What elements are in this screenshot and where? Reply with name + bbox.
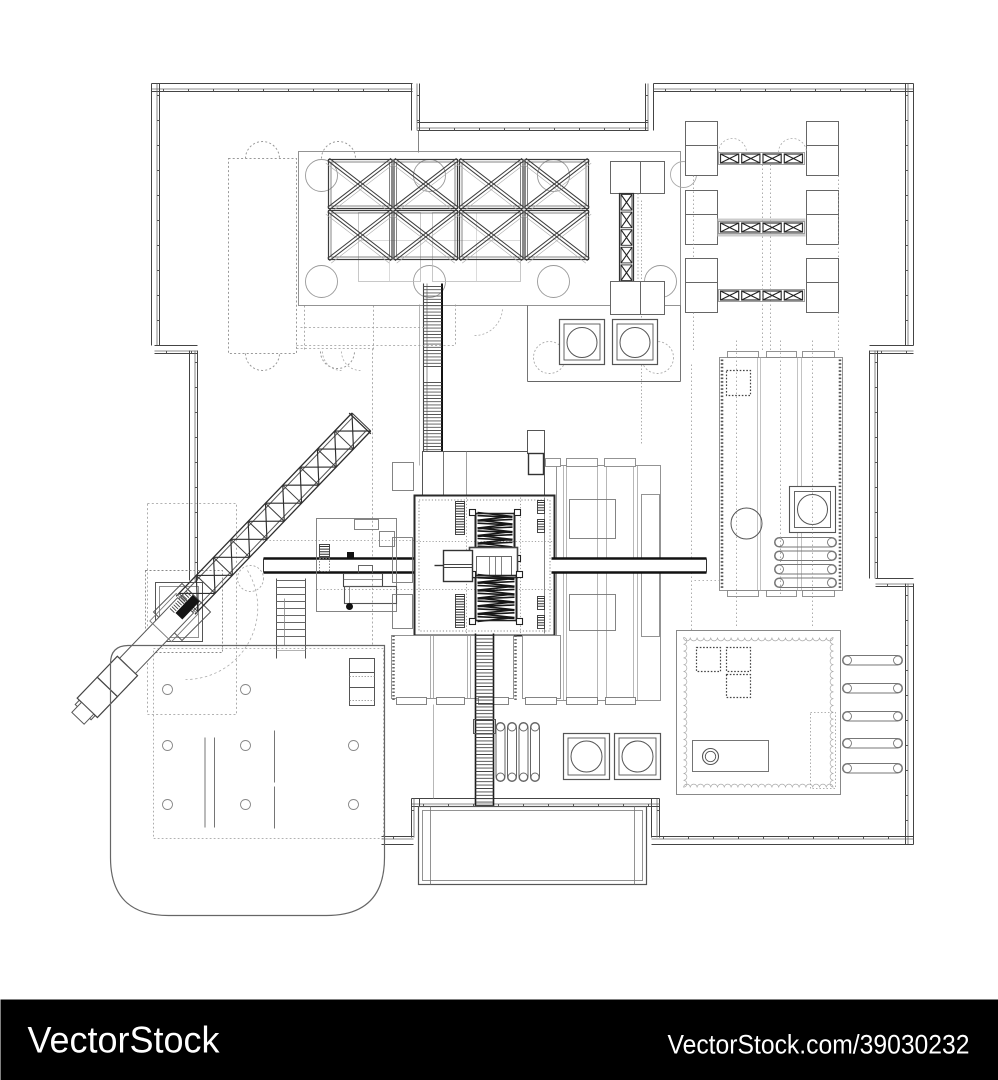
svg-text:VectorStock: VectorStock <box>28 1020 220 1061</box>
svg-text:VectorStock.com/39030232: VectorStock.com/39030232 <box>668 1030 970 1060</box>
